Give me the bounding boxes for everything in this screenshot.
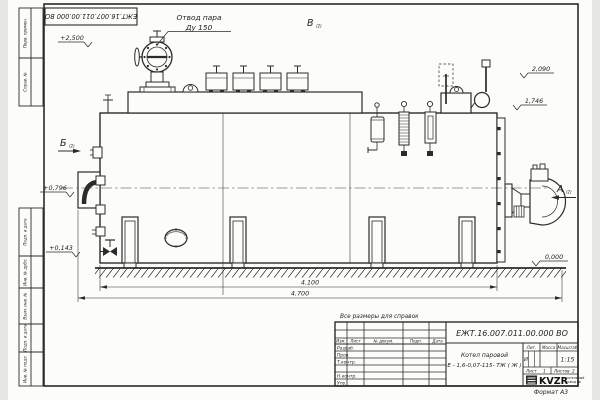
row-nkontr: Н.контр. <box>337 374 357 380</box>
elevation-1746: 1,746 <box>525 97 543 105</box>
brand-text: KVZR <box>539 376 569 387</box>
listov-label: Листов <box>553 369 570 374</box>
ground <box>95 268 566 278</box>
top-left-tap <box>103 95 113 113</box>
elevation-0796: +0,796 <box>43 184 67 192</box>
reference-note: Все размеры для справок <box>340 314 419 320</box>
steam-outlet-valve <box>135 31 175 92</box>
rear-pipe <box>471 60 490 108</box>
boiler-view: 4.100 4.700 +2,500 2,090 1,746 <box>40 13 576 302</box>
title-block: ЕЖТ.16.007.011.00.000 ВО Котел паровой Е… <box>335 322 584 387</box>
view-b-ref: (2) <box>69 144 75 149</box>
dim-inner-label: 4.100 <box>301 279 319 287</box>
top-stamp: ЕЖТ.16.007.011.00.000 ВО <box>45 8 137 25</box>
title-doc-number: ЕЖТ.16.007.011.00.000 ВО <box>456 329 568 338</box>
title-name-line2: Е - 1,6-0,07-115- ТЖ ( Ж ) <box>447 363 521 369</box>
col-doc: № докум. <box>373 339 394 344</box>
row-prov: Пров. <box>337 353 350 359</box>
elevation-0143: +0,143 <box>49 244 73 252</box>
col-podp: Подп. <box>410 339 422 344</box>
col-izm: Изм. <box>336 339 345 344</box>
title-name-line1: Котел паровой <box>461 352 508 359</box>
frame-label-sprav: Справ. № <box>23 72 28 91</box>
col-list: Лист <box>349 339 361 344</box>
elevation-2500: +2,500 <box>60 34 84 42</box>
view-b-label: Б <box>60 138 67 149</box>
top-platform <box>128 92 362 113</box>
view-v-label: В <box>307 18 314 29</box>
format-label: Формат А3 <box>534 389 568 396</box>
frame-label-podp2: Подп. и дата <box>23 324 28 352</box>
frame-label-inv-podl: Инв. № подл. <box>23 355 28 383</box>
brand-sub2: ЗАВОД РФ <box>566 380 582 384</box>
frame-label-vzam: Взам. инв. № <box>23 292 28 319</box>
elevation-2090: 2,090 <box>532 65 550 73</box>
top-hatches <box>206 66 308 93</box>
lit-value: И <box>524 357 528 363</box>
view-v-ref: (2) <box>316 24 322 29</box>
masshtab-header: Масштаб <box>558 345 578 350</box>
row-razrab: Разраб. <box>337 346 354 352</box>
col-data: Дата <box>431 339 443 344</box>
rear-door-burner <box>497 118 566 262</box>
list-value: 1 <box>543 369 546 374</box>
elevation-0000: 0,000 <box>545 253 563 261</box>
frame-label-podp1: Подп. и дата <box>23 218 28 246</box>
frame-label-inv-dubl: Инв. № дубл. <box>23 258 28 285</box>
scale-value: 1:15 <box>561 357 575 364</box>
boiler-drawing-canvas: Перв. примен. Справ. № Подп. и дата Инв.… <box>0 0 600 400</box>
row-utv: Утв. <box>337 381 346 387</box>
list-label: Лист <box>525 369 537 374</box>
frame-left-strip: Перв. примен. Справ. № Подп. и дата Инв.… <box>19 8 43 386</box>
row-tkontr: Т.контр. <box>337 360 356 366</box>
frame-label-perv: Перв. примен. <box>23 18 28 48</box>
steam-outlet-callout: Отвод пара Ду 150 <box>157 13 231 45</box>
lit-header: Лит. <box>526 345 537 350</box>
top-stamp-number: ЕЖТ.16.007.011.00.000 ВО <box>45 12 137 20</box>
dim-overall-label: 4.700 <box>291 290 309 298</box>
callout-line2: Ду 150 <box>185 23 213 32</box>
drawing-page: Перв. примен. Справ. № Подп. и дата Инв.… <box>0 0 600 400</box>
view-a-label: А <box>556 184 564 195</box>
callout-line1: Отвод пара <box>176 13 222 22</box>
massa-header: Масса <box>542 345 556 350</box>
view-a-ref: (2) <box>566 190 572 195</box>
listov-value: 2 <box>572 369 575 374</box>
